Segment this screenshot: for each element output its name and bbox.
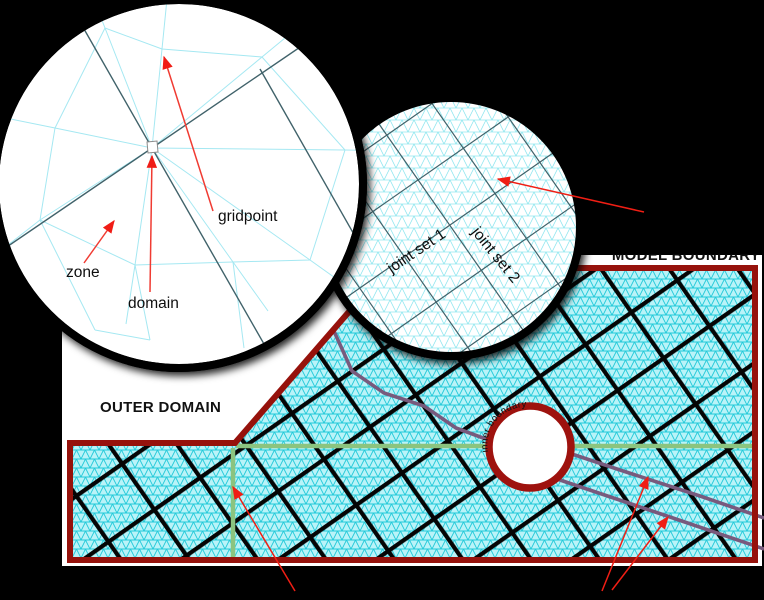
gridpoint-marker [147,141,158,153]
zone-label: zone [66,264,100,281]
outer-domain-label: OUTER DOMAIN [100,399,221,416]
figure-canvas: inner boundary OUTER DOMAIN MODEL BOUNDA… [0,0,764,600]
diagram-svg: inner boundary OUTER DOMAIN MODEL BOUNDA… [0,0,764,600]
domain-label: domain [128,295,179,312]
gridpoint-label: gridpoint [218,208,278,225]
